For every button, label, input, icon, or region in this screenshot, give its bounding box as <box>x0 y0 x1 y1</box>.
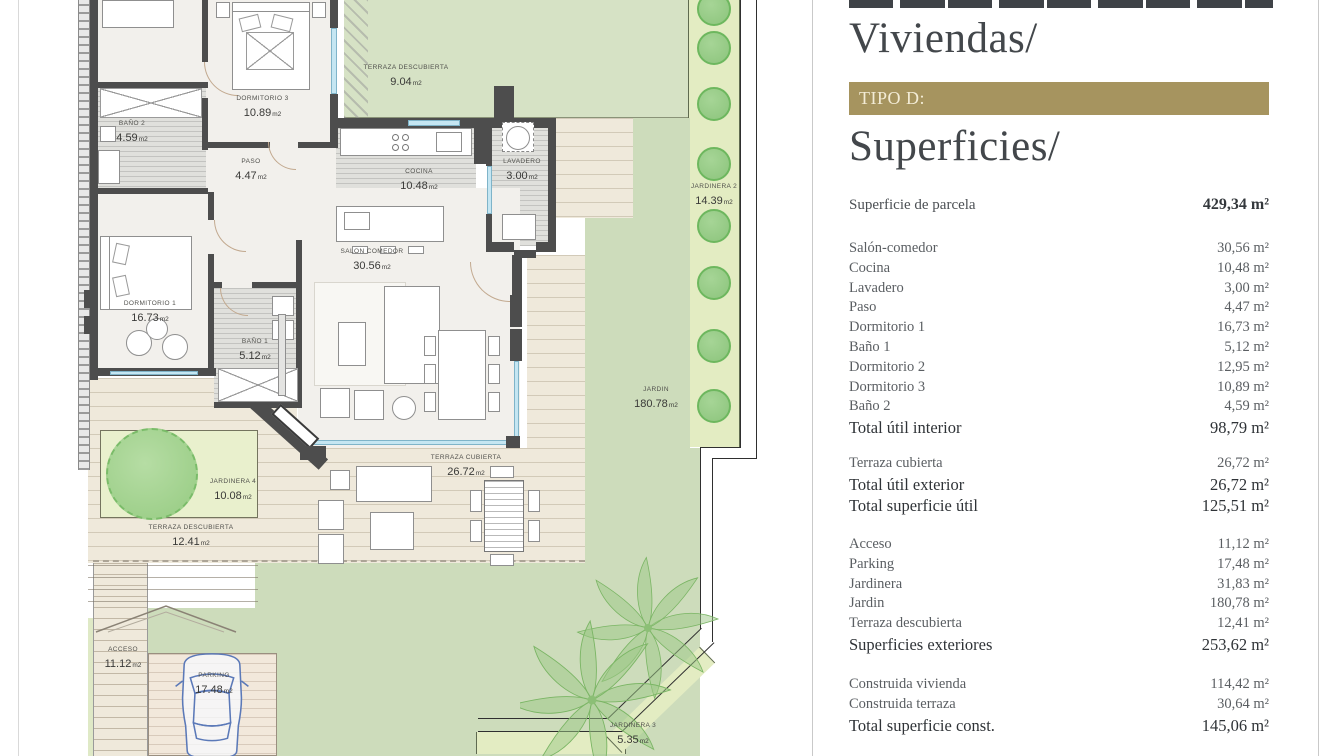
outdoor-table <box>330 470 350 490</box>
area-row-value: 145,06 m² <box>1202 716 1269 736</box>
bed-headboard <box>232 2 310 12</box>
armchair <box>354 390 384 420</box>
room-area: 5.35m2 <box>617 734 648 746</box>
area-row: Lavadero3,00 m² <box>849 280 1269 300</box>
areas-section-construida: Construida vivienda114,42 m²Construida t… <box>849 676 1269 737</box>
hob-burner <box>402 134 409 141</box>
room-area-unit: m2 <box>669 402 678 409</box>
area-row-label: Total útil exterior <box>849 475 964 495</box>
island-sink <box>344 212 370 230</box>
area-row-label: Terraza descubierta <box>849 615 962 632</box>
fence-line <box>712 458 757 459</box>
room-area-unit: m2 <box>224 688 233 695</box>
bed <box>102 0 174 28</box>
area-row-value: 10,48 m² <box>1217 260 1269 277</box>
area-row: Parking17,48 m² <box>849 556 1269 576</box>
area-row-value: 30,64 m² <box>1217 696 1269 713</box>
room-label-b1: BAÑO 15.12m2 <box>220 338 290 364</box>
area-row-label: Total útil interior <box>849 418 962 438</box>
room-area-unit: m2 <box>640 738 649 745</box>
area-row: Total útil exterior26,72 m² <box>849 475 1269 497</box>
wall-segment <box>252 282 302 288</box>
pillar <box>84 316 98 334</box>
room-area: 16.73m2 <box>131 312 169 324</box>
area-row: Construida vivienda114,42 m² <box>849 676 1269 696</box>
room-area-unit: m2 <box>160 316 169 323</box>
area-row-label: Baño 2 <box>849 398 890 415</box>
room-label-cocina: COCINA10.48m2 <box>376 168 462 194</box>
room-area: 10.89m2 <box>244 107 282 119</box>
area-row-value: 180,78 m² <box>1210 595 1269 612</box>
room-area-unit: m2 <box>724 199 733 206</box>
area-row: Total superficie útil125,51 m² <box>849 496 1269 518</box>
room-area-unit: m2 <box>413 80 422 87</box>
shower <box>218 368 298 402</box>
area-row: Cocina10,48 m² <box>849 260 1269 280</box>
outdoor-chair <box>490 554 514 566</box>
room-area: 4.59m2 <box>116 132 147 144</box>
corner-post <box>506 436 520 448</box>
room-label-lav: LAVADERO3.00m2 <box>494 158 550 184</box>
room-name: JARDINERA 4 <box>194 478 272 486</box>
room-name: TERRAZA DESCUBIERTA <box>350 64 462 72</box>
wall-segment <box>548 128 556 252</box>
parcela-label: Superficie de parcela <box>849 197 976 214</box>
outdoor-chair <box>318 500 344 530</box>
section-title: Superficies/ <box>849 124 1060 170</box>
window-glazing <box>514 361 519 443</box>
room-name: SALON COMEDOR <box>316 248 428 256</box>
door-glazing <box>487 166 492 214</box>
chair <box>424 336 436 356</box>
room-label-td9: TERRAZA DESCUBIERTA9.04m2 <box>350 64 462 90</box>
room-label-d1: DORMITORIO 116.73m2 <box>104 300 196 326</box>
page-title: Viviendas/ <box>849 16 1038 62</box>
room-name: LAVADERO <box>494 158 550 166</box>
side-table <box>392 396 416 420</box>
bed-headboard <box>100 236 110 310</box>
brochure-page: DORMITORIO 310.89m2BAÑO 24.59m2PASO4.47m… <box>0 0 1319 756</box>
area-row-label: Paso <box>849 299 876 316</box>
room-area: 5.12m2 <box>239 350 270 362</box>
pillar <box>494 86 514 118</box>
area-row-label: Jardin <box>849 595 884 612</box>
hob-burner <box>392 144 399 151</box>
area-row-value: 30,56 m² <box>1217 240 1269 257</box>
cropped-header-text <box>849 0 1273 8</box>
nightstand <box>312 2 326 18</box>
room-area-unit: m2 <box>476 470 485 477</box>
kitchen-sink <box>436 132 462 152</box>
terrace-side-area <box>527 255 585 450</box>
room-name: JARDINERA 2 <box>684 183 744 191</box>
area-row-value: 125,51 m² <box>1202 496 1269 516</box>
area-row-value: 253,62 m² <box>1202 635 1269 655</box>
area-row-label: Total superficie útil <box>849 496 978 516</box>
wall-segment <box>208 254 214 374</box>
room-name: BAÑO 1 <box>220 338 290 346</box>
room-area-unit: m2 <box>201 540 210 547</box>
room-area-unit: m2 <box>262 354 271 361</box>
wall-segment <box>202 0 208 62</box>
pergola-hatch <box>344 0 368 118</box>
outdoor-dining-table <box>484 480 524 552</box>
fence-line <box>756 0 757 458</box>
boundary-hatch <box>78 0 90 470</box>
pillar <box>84 290 98 308</box>
room-area: 9.04m2 <box>390 76 421 88</box>
room-label-j2: JARDINERA 214.39m2 <box>684 183 744 209</box>
area-row-label: Lavadero <box>849 280 904 297</box>
area-row-value: 3,00 m² <box>1224 280 1269 297</box>
wall-segment <box>512 255 522 297</box>
area-row-label: Jardinera <box>849 576 902 593</box>
fence-line <box>740 0 741 447</box>
room-area: 26.72m2 <box>447 466 485 478</box>
dining-table <box>438 330 486 420</box>
area-row-label: Cocina <box>849 260 890 277</box>
room-label-d3: DORMITORIO 310.89m2 <box>215 95 310 121</box>
area-row-value: 12,41 m² <box>1217 615 1269 632</box>
room-label-j3: JARDINERA 35.35m2 <box>588 722 678 748</box>
area-row-label: Total superficie const. <box>849 716 995 736</box>
room-area: 17.48m2 <box>195 684 233 696</box>
room-name: JARDIN <box>620 386 692 394</box>
area-row-value: 11,12 m² <box>1218 536 1269 553</box>
sink <box>272 296 294 316</box>
bush <box>697 31 731 65</box>
area-row: Paso4,47 m² <box>849 299 1269 319</box>
area-row-value: 17,48 m² <box>1217 556 1269 573</box>
room-area-unit: m2 <box>139 136 148 143</box>
room-name: DORMITORIO 1 <box>104 300 196 308</box>
area-row: Baño 24,59 m² <box>849 398 1269 418</box>
cabinet <box>502 214 536 240</box>
area-row: Terraza descubierta12,41 m² <box>849 615 1269 635</box>
chair <box>424 392 436 412</box>
hob-burner <box>402 144 409 151</box>
area-row-label: Construida vivienda <box>849 676 966 693</box>
room-name: TERRAZA CUBIERTA <box>404 454 528 462</box>
area-row-label: Construida terraza <box>849 696 956 713</box>
area-row-label: Parking <box>849 556 894 573</box>
outdoor-chair <box>470 490 482 512</box>
outdoor-chair <box>318 534 344 564</box>
area-row-label: Dormitorio 2 <box>849 359 925 376</box>
room-label-j4: JARDINERA 410.08m2 <box>194 478 272 504</box>
room-label-tc: TERRAZA CUBIERTA26.72m2 <box>404 454 528 480</box>
area-row: Dormitorio 212,95 m² <box>849 359 1269 379</box>
wall-segment <box>536 242 556 252</box>
room-label-paso: PASO4.47m2 <box>218 158 284 184</box>
gate-roof-icon <box>88 592 238 636</box>
chair <box>488 392 500 412</box>
chair <box>488 336 500 356</box>
room-label-acc: ACCESO11.12m2 <box>94 646 152 672</box>
area-row-value: 4,47 m² <box>1224 299 1269 316</box>
type-badge-label: TIPO D: <box>849 82 1269 115</box>
outdoor-chair <box>470 520 482 542</box>
entrance-step <box>300 446 326 460</box>
car-icon <box>160 650 264 756</box>
area-row-value: 10,89 m² <box>1217 379 1269 396</box>
room-area-unit: m2 <box>132 662 141 669</box>
area-row: Total útil interior98,79 m² <box>849 418 1269 440</box>
room-name: TERRAZA DESCUBIERTA <box>144 524 238 532</box>
area-row: Salón-comedor30,56 m² <box>849 240 1269 260</box>
pillar <box>510 329 522 361</box>
room-label-park: PARKING17.48m2 <box>176 672 252 698</box>
room-area-unit: m2 <box>258 174 267 181</box>
room-area-unit: m2 <box>272 111 281 118</box>
bush <box>697 266 731 300</box>
room-name: COCINA <box>376 168 462 176</box>
type-badge: TIPO D: <box>849 82 1269 115</box>
area-row-value: 16,73 m² <box>1217 319 1269 336</box>
room-label-td12: TERRAZA DESCUBIERTA12.41m2 <box>144 524 238 550</box>
wall-segment <box>492 242 514 252</box>
room-area: 10.48m2 <box>400 180 438 192</box>
area-row: Terraza cubierta26,72 m² <box>849 455 1269 475</box>
bush <box>697 389 731 423</box>
wall-segment <box>208 192 214 220</box>
room-area-unit: m2 <box>429 184 438 191</box>
area-row: Acceso11,12 m² <box>849 536 1269 556</box>
blanket-fold <box>246 32 294 70</box>
sink <box>98 150 120 184</box>
window-glazing <box>110 371 198 375</box>
area-row-value: 98,79 m² <box>1210 418 1269 438</box>
area-row-value: 12,95 m² <box>1217 359 1269 376</box>
area-row: Superficies exteriores253,62 m² <box>849 635 1269 657</box>
chair <box>162 334 188 360</box>
parcela-value: 429,34 m² <box>1203 196 1269 214</box>
pillar <box>510 295 522 327</box>
coffee-table <box>338 322 366 366</box>
fence-line <box>700 447 741 448</box>
area-row: Dormitorio 310,89 m² <box>849 379 1269 399</box>
area-row-label: Superficies exteriores <box>849 635 992 655</box>
room-name: ACCESO <box>94 646 152 654</box>
info-panel: Viviendas/ TIPO D: Superficies/ Superfic… <box>812 0 1319 756</box>
room-area-unit: m2 <box>243 494 252 501</box>
room-area: 11.12m2 <box>105 658 142 670</box>
area-row-label: Dormitorio 1 <box>849 319 925 336</box>
area-row: Jardin180,78 m² <box>849 595 1269 615</box>
chair <box>424 364 436 384</box>
window-glazing <box>300 440 514 445</box>
washing-machine <box>506 126 530 150</box>
chair <box>488 364 500 384</box>
page-border-line <box>18 0 19 756</box>
room-area: 14.39m2 <box>695 195 733 207</box>
garden-area <box>585 218 633 450</box>
wall-segment <box>486 128 492 166</box>
room-area: 4.47m2 <box>235 170 266 182</box>
floor-plan: DORMITORIO 310.89m2BAÑO 24.59m2PASO4.47m… <box>0 0 812 756</box>
wall-segment <box>206 142 270 148</box>
area-row-label: Baño 1 <box>849 339 890 356</box>
bush <box>697 147 731 181</box>
room-label-salon: SALON COMEDOR30.56m2 <box>316 248 428 274</box>
bush <box>697 329 731 363</box>
room-area: 180.78m2 <box>634 398 678 410</box>
area-row-label: Salón-comedor <box>849 240 938 257</box>
area-row-value: 26,72 m² <box>1210 475 1269 495</box>
outdoor-chair <box>528 490 540 512</box>
areas-section-exteriores: Acceso11,12 m²Parking17,48 m²Jardinera31… <box>849 536 1269 656</box>
room-name: DORMITORIO 3 <box>215 95 310 103</box>
area-row-label: Acceso <box>849 536 892 553</box>
room-label-jardin: JARDIN180.78m2 <box>620 386 692 412</box>
area-row: Construida terraza30,64 m² <box>849 696 1269 716</box>
window-glazing <box>331 28 337 94</box>
bush <box>697 87 731 121</box>
area-row-value: 31,83 m² <box>1217 576 1269 593</box>
room-area-unit: m2 <box>382 264 391 271</box>
area-row-label: Terraza cubierta <box>849 455 943 472</box>
room-area: 30.56m2 <box>353 260 391 272</box>
room-label-b2: BAÑO 24.59m2 <box>100 120 164 146</box>
area-row: Jardinera31,83 m² <box>849 576 1269 596</box>
shower <box>100 88 202 118</box>
room-name: BAÑO 2 <box>100 120 164 128</box>
areas-section-interior: Salón-comedor30,56 m²Cocina10,48 m²Lavad… <box>849 240 1269 440</box>
terrace-uncovered-area <box>344 0 690 118</box>
area-row-value: 4,59 m² <box>1224 398 1269 415</box>
room-area-unit: m2 <box>529 174 538 181</box>
window-glazing <box>408 120 460 126</box>
parcela-row: Superficie de parcela 429,34 m² <box>849 196 1269 214</box>
room-name: PARKING <box>176 672 252 680</box>
bed <box>100 236 192 310</box>
room-name: PASO <box>218 158 284 166</box>
room-area: 10.08m2 <box>214 490 252 502</box>
room-area: 3.00m2 <box>506 170 537 182</box>
hob-burner <box>392 134 399 141</box>
area-row: Total superficie const.145,06 m² <box>849 716 1269 738</box>
outdoor-coffee-table <box>370 512 414 550</box>
wall-segment <box>90 188 208 194</box>
area-row: Dormitorio 116,73 m² <box>849 319 1269 339</box>
areas-section-exterior-util: Terraza cubierta26,72 m²Total útil exter… <box>849 455 1269 518</box>
wall-segment <box>330 0 338 28</box>
area-row-value: 26,72 m² <box>1217 455 1269 472</box>
room-name: JARDINERA 3 <box>588 722 678 730</box>
area-row-value: 5,12 m² <box>1224 339 1269 356</box>
area-row-value: 114,42 m² <box>1210 676 1269 693</box>
room-area: 12.41m2 <box>172 536 210 548</box>
nightstand <box>216 2 230 18</box>
area-row: Baño 15,12 m² <box>849 339 1269 359</box>
wall-segment <box>486 214 492 252</box>
tree <box>106 428 198 520</box>
area-row-label: Dormitorio 3 <box>849 379 925 396</box>
path-area <box>555 118 633 218</box>
armchair <box>320 388 350 418</box>
bush <box>697 209 731 243</box>
outdoor-chair <box>528 520 540 542</box>
